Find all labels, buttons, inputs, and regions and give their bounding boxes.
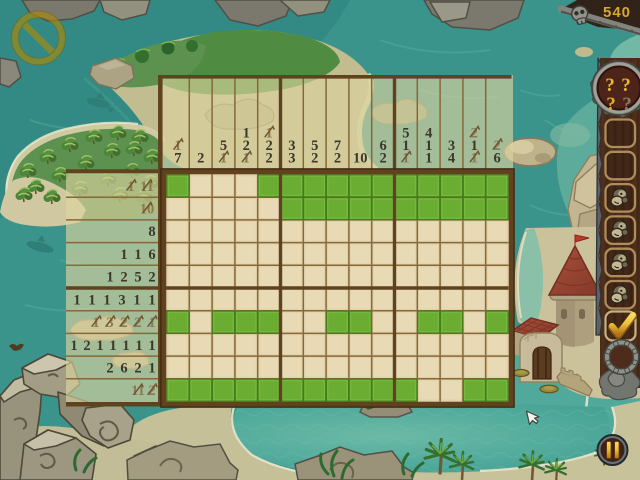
svg-text:?: ? <box>622 94 632 115</box>
svg-text:?: ? <box>605 75 615 96</box>
svg-text:?: ? <box>621 75 631 96</box>
svg-text:540: 540 <box>603 4 631 21</box>
svg-text:?: ? <box>606 94 616 115</box>
